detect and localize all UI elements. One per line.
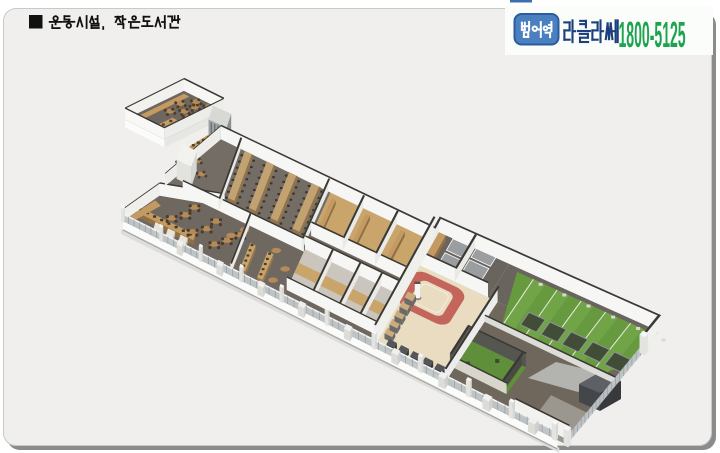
svg-text:1800-5125: 1800-5125 bbox=[619, 14, 686, 55]
